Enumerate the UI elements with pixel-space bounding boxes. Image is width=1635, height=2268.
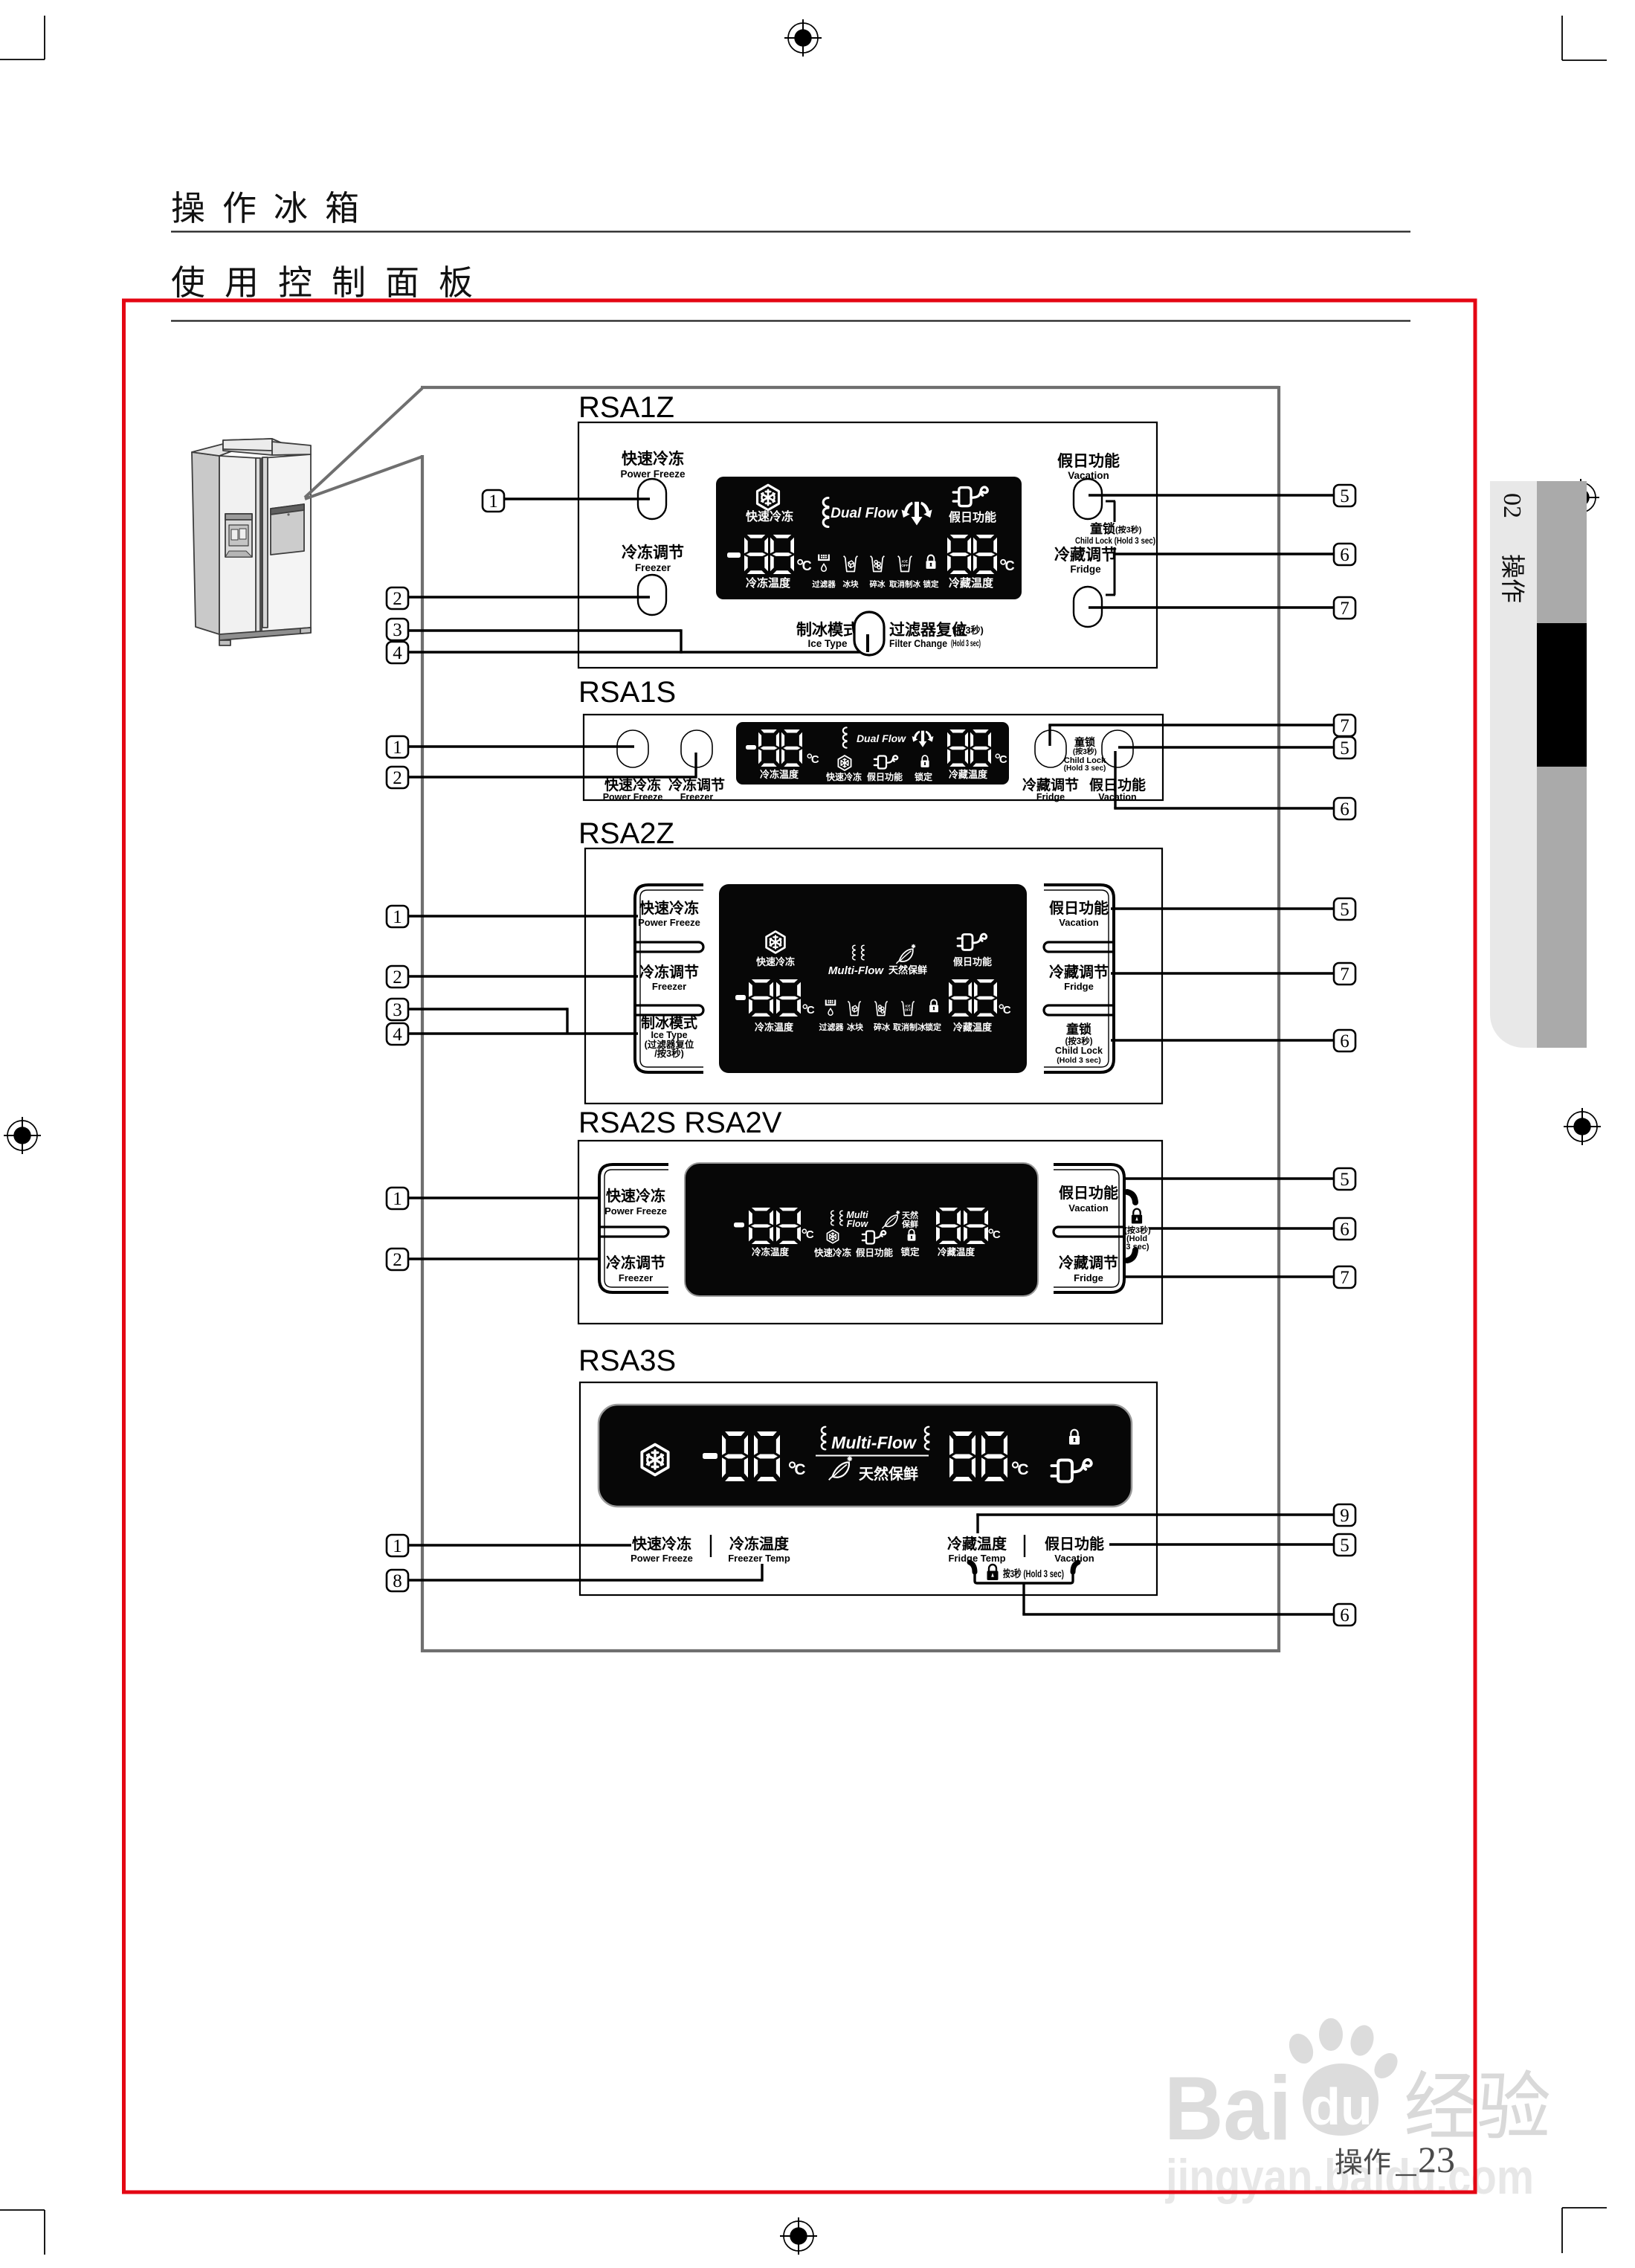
svg-text:Multi‑Flow: Multi‑Flow (828, 964, 884, 977)
svg-text:2: 2 (393, 967, 402, 988)
svg-text:4: 4 (393, 643, 402, 663)
svg-text:快速冷冻: 快速冷冻 (826, 771, 862, 782)
svg-text:(Hold 3 sec): (Hold 3 sec) (951, 640, 981, 648)
svg-text:锁定: 锁定 (900, 1246, 920, 1257)
svg-text:碎冰: 碎冰 (874, 1022, 891, 1032)
svg-text:假日功能: 假日功能 (1045, 1535, 1104, 1553)
svg-text:Child Lock (Hold 3 sec): Child Lock (Hold 3 sec) (1075, 537, 1155, 546)
svg-text:假日功能: 假日功能 (1057, 452, 1120, 470)
svg-text:RSA1S: RSA1S (578, 676, 676, 709)
svg-text:3 sec): 3 sec) (1126, 1243, 1149, 1251)
svg-text:du: du (1309, 2078, 1373, 2136)
svg-text:冷藏调节: 冷藏调节 (1022, 776, 1079, 793)
svg-text:Bai: Bai (1164, 2058, 1291, 2159)
svg-text:冷冻调节: 冷冻调节 (606, 1254, 665, 1272)
svg-text:冷冻温度: 冷冻温度 (729, 1535, 790, 1553)
svg-text:Freezer: Freezer (619, 1272, 653, 1283)
svg-text:4: 4 (393, 1025, 402, 1045)
svg-text:Dual Flow: Dual Flow (857, 732, 906, 744)
svg-text:(按3秒): (按3秒) (952, 625, 984, 636)
svg-text:假日功能: 假日功能 (1089, 776, 1146, 793)
svg-text:(Hold 3 sec): (Hold 3 sec) (1064, 764, 1106, 773)
svg-text:Multi‑Flow: Multi‑Flow (831, 1433, 918, 1452)
svg-text:Freezer: Freezer (680, 792, 714, 802)
svg-text:冷藏温度: 冷藏温度 (949, 576, 994, 590)
svg-text:快速冷冻: 快速冷冻 (632, 1535, 691, 1553)
svg-text:7: 7 (1340, 599, 1349, 619)
svg-text:Filter Change: Filter Change (889, 638, 947, 649)
svg-text:验: 验 (1477, 2066, 1551, 2149)
svg-text:1: 1 (393, 1536, 402, 1556)
svg-text:快速冷冻: 快速冷冻 (746, 509, 793, 523)
svg-text:3: 3 (393, 620, 402, 640)
svg-text:按3秒 (Hold 3 sec): 按3秒 (Hold 3 sec) (1003, 1568, 1064, 1579)
svg-text:冷藏温度: 冷藏温度 (938, 1246, 975, 1257)
svg-text:Vacation: Vacation (1068, 1202, 1109, 1214)
svg-text:过滤器: 过滤器 (812, 579, 836, 589)
svg-text:5: 5 (1340, 738, 1349, 758)
svg-text:锁定: 锁定 (925, 1022, 941, 1032)
svg-text:Power Freeze: Power Freeze (604, 1205, 667, 1217)
svg-text:取消制冰: 取消制冰 (889, 579, 920, 589)
svg-text:C: C (999, 753, 1007, 766)
svg-text:经: 经 (1404, 2066, 1478, 2149)
svg-text:8: 8 (393, 1571, 402, 1591)
svg-text:假日功能: 假日功能 (949, 510, 996, 524)
svg-text:5: 5 (1340, 486, 1349, 506)
svg-text:Child Lock: Child Lock (1055, 1046, 1103, 1056)
svg-text:1: 1 (488, 492, 498, 512)
svg-text:冷藏调节: 冷藏调节 (1054, 546, 1117, 564)
svg-text:取消制冰: 取消制冰 (893, 1022, 926, 1032)
svg-text:假日功能: 假日功能 (867, 771, 903, 782)
svg-text:使用控制面板: 使用控制面板 (171, 263, 492, 302)
svg-text:C: C (811, 753, 819, 766)
svg-text:锁定: 锁定 (915, 771, 932, 782)
svg-text:RSA3S: RSA3S (578, 1344, 676, 1377)
svg-text:天然: 天然 (902, 1210, 918, 1220)
svg-text:Dual Flow: Dual Flow (831, 506, 898, 521)
svg-text:操作: 操作 (1499, 554, 1526, 603)
svg-text:冷冻温度: 冷冻温度 (746, 576, 791, 590)
svg-text:冰块: 冰块 (843, 579, 860, 589)
svg-text:假日功能: 假日功能 (953, 956, 992, 967)
svg-text:RSA2Z: RSA2Z (578, 817, 674, 850)
svg-text:Power Freeze: Power Freeze (603, 792, 663, 802)
svg-text:C: C (1003, 1004, 1011, 1017)
svg-text:冷冻调节: 冷冻调节 (668, 776, 725, 793)
svg-text:操作: 操作 (1335, 2148, 1391, 2179)
svg-text:冷冻温度: 冷冻温度 (755, 1022, 794, 1033)
svg-text:RSA1Z: RSA1Z (578, 391, 674, 424)
svg-text:C: C (807, 1004, 815, 1017)
svg-text:5: 5 (1340, 1170, 1349, 1190)
svg-text:6: 6 (1340, 799, 1349, 819)
svg-text:快速冷冻: 快速冷冻 (622, 450, 684, 468)
svg-text:锁定: 锁定 (923, 579, 940, 589)
svg-text:(按3秒): (按3秒) (1124, 1225, 1151, 1235)
svg-text:碎冰: 碎冰 (870, 579, 886, 589)
svg-text:C: C (1005, 558, 1015, 573)
svg-text:假日功能: 假日功能 (1049, 899, 1109, 917)
svg-text:Power Freeze: Power Freeze (631, 1553, 693, 1564)
svg-text:假日功能: 假日功能 (856, 1247, 894, 1258)
svg-text:Ice Type: Ice Type (807, 638, 848, 649)
svg-text:Fridge: Fridge (1064, 981, 1094, 992)
svg-text:C: C (806, 1228, 814, 1241)
svg-text:童锁: 童锁 (1066, 1022, 1091, 1037)
svg-text:Vacation: Vacation (1098, 792, 1136, 802)
svg-text:RSA2S RSA2V: RSA2S RSA2V (578, 1106, 782, 1139)
svg-text:Fridge Temp: Fridge Temp (948, 1553, 1005, 1564)
svg-text:(按3秒): (按3秒) (1115, 524, 1142, 535)
svg-text:童锁: 童锁 (1090, 521, 1115, 536)
svg-text:冷藏调节: 冷藏调节 (1049, 963, 1109, 981)
svg-text:冷冻温度: 冷冻温度 (752, 1246, 790, 1257)
svg-text:7: 7 (1340, 964, 1349, 985)
svg-text:Flow: Flow (847, 1219, 869, 1229)
svg-text:冰块: 冰块 (847, 1022, 864, 1032)
svg-text:快速冷冻: 快速冷冻 (606, 1187, 665, 1205)
svg-text:冷冻调节: 冷冻调节 (622, 544, 684, 561)
svg-text:(Hold 3 sec): (Hold 3 sec) (1057, 1056, 1101, 1065)
svg-text:假日功能: 假日功能 (1059, 1184, 1118, 1202)
svg-text:冷藏温度: 冷藏温度 (949, 769, 988, 780)
svg-text:Fridge: Fridge (1070, 564, 1101, 575)
svg-text:1: 1 (393, 1189, 402, 1209)
svg-text:Power Freeze: Power Freeze (620, 468, 686, 480)
svg-text:冷藏温度: 冷藏温度 (947, 1535, 1007, 1553)
svg-text:童锁: 童锁 (1074, 736, 1095, 748)
svg-text:天然保鲜: 天然保鲜 (859, 1465, 918, 1483)
svg-text:Ice Type: Ice Type (651, 1030, 687, 1040)
svg-text:C: C (1017, 1461, 1028, 1478)
svg-text:快速冷冻: 快速冷冻 (604, 776, 661, 793)
svg-text:6: 6 (1340, 1031, 1349, 1051)
svg-text:冷冻调节: 冷冻调节 (639, 963, 699, 981)
svg-text:(按3秒): (按3秒) (1065, 1036, 1092, 1046)
svg-text:2: 2 (393, 768, 402, 788)
svg-text:23: 23 (1418, 2139, 1455, 2180)
svg-text:1: 1 (393, 738, 402, 758)
svg-text:制冰模式: 制冰模式 (796, 621, 859, 639)
svg-text:快速冷冻: 快速冷冻 (639, 899, 699, 917)
svg-text:Freezer Temp: Freezer Temp (728, 1553, 790, 1564)
svg-text:快速冷冻: 快速冷冻 (756, 956, 795, 967)
svg-text:制冰模式: 制冰模式 (641, 1014, 697, 1031)
svg-text:/按3秒): /按3秒) (654, 1048, 684, 1059)
svg-text:1: 1 (393, 907, 402, 927)
svg-text:天然保鲜: 天然保鲜 (889, 964, 927, 976)
svg-text:2: 2 (393, 589, 402, 609)
svg-text:C: C (802, 558, 812, 573)
svg-text:5: 5 (1340, 1536, 1349, 1556)
svg-text:Fridge: Fridge (1036, 792, 1065, 802)
svg-text:快速冷冻: 快速冷冻 (814, 1247, 852, 1258)
svg-text:Vacation: Vacation (1059, 917, 1099, 928)
svg-text:Freezer: Freezer (635, 562, 671, 573)
svg-text:Fridge: Fridge (1074, 1272, 1103, 1283)
svg-text:7: 7 (1340, 1268, 1349, 1288)
svg-text:保鲜: 保鲜 (901, 1219, 918, 1229)
svg-text:Power Freeze: Power Freeze (638, 917, 700, 928)
svg-text:冷冻温度: 冷冻温度 (760, 769, 799, 780)
svg-text:2: 2 (393, 1250, 402, 1270)
svg-text:7: 7 (1340, 716, 1349, 736)
svg-text:9: 9 (1340, 1506, 1349, 1526)
svg-text:Freezer: Freezer (652, 981, 686, 992)
svg-text:C: C (794, 1461, 805, 1478)
svg-text:3: 3 (393, 1000, 402, 1020)
svg-text:(按3秒): (按3秒) (1073, 747, 1097, 756)
svg-text:操作冰箱: 操作冰箱 (171, 189, 376, 228)
svg-text:02: 02 (1498, 493, 1526, 518)
svg-text:C: C (993, 1228, 1001, 1241)
svg-text:6: 6 (1340, 1220, 1349, 1240)
svg-text:冷藏温度: 冷藏温度 (953, 1022, 993, 1033)
svg-text:冷藏调节: 冷藏调节 (1059, 1254, 1118, 1272)
svg-text:6: 6 (1340, 545, 1349, 565)
svg-text:5: 5 (1340, 900, 1349, 920)
svg-text:6: 6 (1340, 1605, 1349, 1626)
svg-text:过滤器: 过滤器 (819, 1022, 845, 1032)
